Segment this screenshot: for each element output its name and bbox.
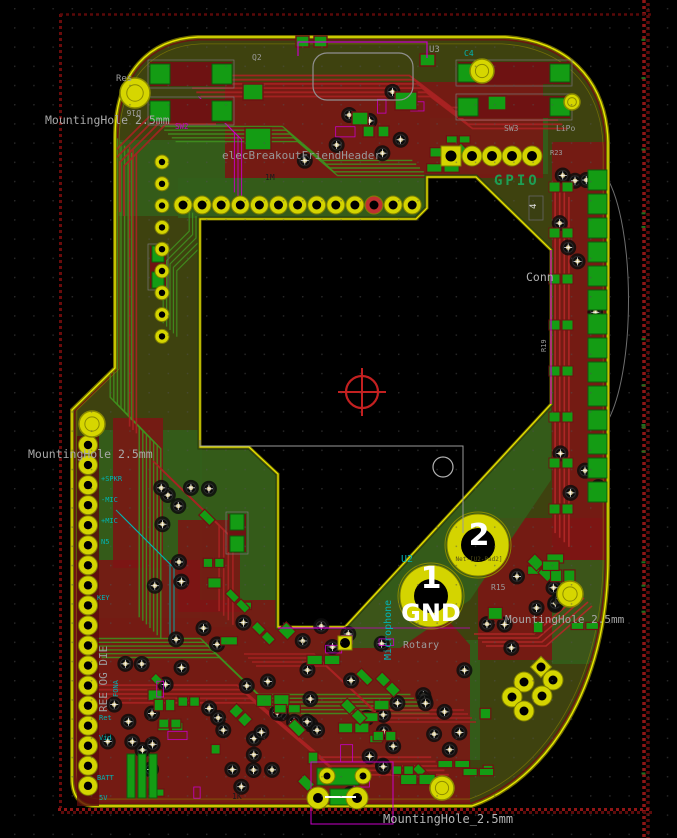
text-pad-label-ret[interactable]: Ret: [99, 714, 112, 722]
text-vertical-microphone[interactable]: Microphone: [383, 600, 394, 660]
text-ref-sw2[interactable]: SW2: [175, 122, 189, 131]
text-pad-label-n5[interactable]: N5: [101, 538, 109, 546]
text-pad2-number[interactable]: 2: [469, 518, 490, 553]
text-mounting-hole-top[interactable]: MountingHole 2.5mm: [45, 113, 170, 127]
text-mounting-hole-right[interactable]: MountingHole 2.5mm: [505, 613, 625, 626]
text-ref-q2[interactable]: Q2: [252, 53, 262, 62]
text-pad-label-5v[interactable]: 5V: [99, 794, 108, 802]
text-ref-u2[interactable]: U2: [401, 554, 413, 565]
text-pad-label-mic-neg[interactable]: -MIC: [101, 496, 118, 504]
text-conn-label[interactable]: Conn: [526, 270, 554, 284]
text-ref-r15[interactable]: R15: [491, 583, 506, 592]
text-vertical-silk-text[interactable]: REE OG DIE: [97, 646, 110, 712]
text-mounting-hole-left[interactable]: MountingHole 2.5mm: [28, 447, 153, 461]
text-pad-label-vid[interactable]: Vid: [99, 734, 112, 742]
text-net-label-pad2[interactable]: Net-[U2-Pad2]: [456, 556, 503, 563]
text-ref-r19[interactable]: R19: [540, 339, 548, 352]
text-gnd-label[interactable]: GND: [401, 599, 461, 627]
text-rotary-label[interactable]: Rotary: [403, 640, 439, 651]
text-pad-label-spkr[interactable]: +SPKR: [101, 475, 123, 483]
text-pad-label-batt[interactable]: BATT: [97, 774, 115, 782]
text-pad-label-mic-pos[interactable]: +MIC: [101, 517, 118, 525]
text-label-res[interactable]: Res: [116, 74, 132, 84]
text-ref-sw3[interactable]: SW3: [504, 124, 519, 133]
text-pad4-number[interactable]: 4: [529, 204, 539, 209]
text-vertical-fona[interactable]: FONA: [112, 679, 120, 697]
text-mounting-hole-bottom[interactable]: MountingHole_2.5mm: [383, 812, 513, 826]
text-pad1-number[interactable]: 1: [421, 561, 442, 596]
text-ref-u3[interactable]: U3: [429, 45, 440, 55]
text-ref-c4[interactable]: C4: [464, 49, 474, 58]
text-val-1k[interactable]: 1K: [232, 792, 242, 801]
pcb-canvas[interactable]: ResMountingHole 2.5mmelecBreakoutFriendH…: [0, 0, 677, 838]
text-ref-d16[interactable]: D16: [126, 108, 141, 117]
text-val-1m[interactable]: 1M: [265, 173, 275, 182]
text-gpio-label[interactable]: GPIO: [494, 173, 540, 189]
text-ref-lipo[interactable]: LiPo: [556, 124, 575, 133]
pcb-editor-canvas[interactable]: ResMountingHole 2.5mmelecBreakoutFriendH…: [0, 0, 677, 838]
text-pad-label-key[interactable]: KEY: [97, 594, 110, 602]
text-board-title[interactable]: elecBreakoutFriendHeader: [222, 149, 381, 162]
text-ref-r23[interactable]: R23: [550, 149, 563, 157]
